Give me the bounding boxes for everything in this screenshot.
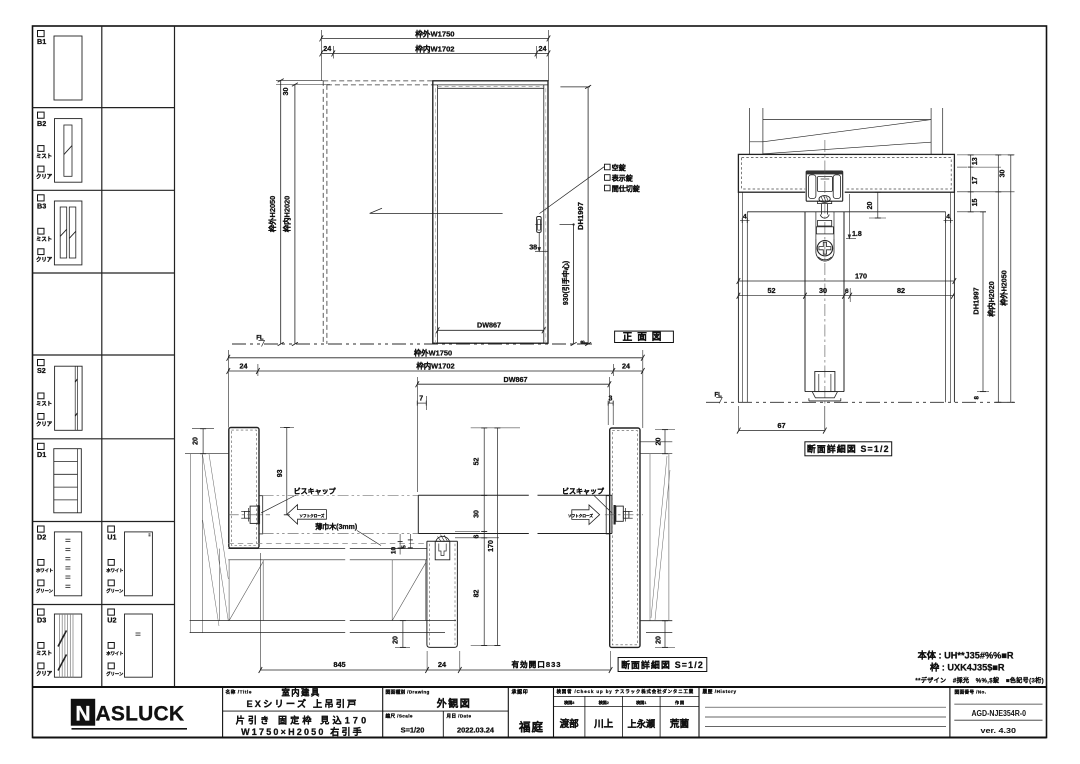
svg-text:S=1/20: S=1/20	[401, 726, 425, 735]
svg-text:正面図: 正面図	[623, 332, 667, 343]
svg-text:片引き 固定枠 見込170: 片引き 固定枠 見込170	[236, 714, 370, 725]
svg-text:24: 24	[323, 44, 331, 53]
svg-text:クリア: クリア	[36, 670, 53, 678]
svg-text:表示錠: 表示錠	[611, 173, 634, 182]
svg-text:20: 20	[655, 438, 662, 446]
svg-text:ソフトクローズ: ソフトクローズ	[568, 513, 593, 518]
svg-text:作 図: 作 図	[675, 699, 684, 705]
svg-text:1.8: 1.8	[852, 231, 862, 238]
svg-text:38: 38	[529, 243, 537, 252]
svg-text:検図1: 検図1	[636, 699, 647, 705]
svg-text:履歴 /History: 履歴 /History	[703, 688, 737, 695]
svg-text:3: 3	[609, 396, 613, 403]
svg-text:枠内H2020: 枠内H2020	[282, 196, 291, 234]
svg-text:24: 24	[622, 361, 630, 370]
svg-text:検図2: 検図2	[599, 699, 610, 705]
svg-text:ミスト: ミスト	[36, 236, 52, 243]
svg-text:枠外H2050: 枠外H2050	[999, 270, 1008, 307]
svg-text:5: 5	[402, 545, 408, 548]
svg-text:断面詳細図 S=1/2: 断面詳細図 S=1/2	[807, 443, 890, 454]
svg-text:名称 /Title: 名称 /Title	[226, 689, 253, 696]
svg-text:枠 : UXK4J35$■R: 枠 : UXK4J35$■R	[929, 662, 1005, 673]
svg-text:D3: D3	[37, 616, 46, 625]
svg-text:24: 24	[438, 660, 447, 669]
svg-text:170: 170	[488, 540, 495, 552]
svg-text:ミスト: ミスト	[36, 401, 52, 408]
svg-text:**デザイン #採光 %%,$錠 ■色記号(3桁): **デザイン #採光 %%,$錠 ■色記号(3桁)	[915, 676, 1044, 684]
svg-text:承認印: 承認印	[511, 689, 529, 696]
svg-text:8: 8	[974, 396, 981, 400]
svg-text:17: 17	[972, 177, 979, 185]
svg-text:U1: U1	[107, 533, 116, 542]
svg-text:24: 24	[539, 44, 547, 53]
svg-text:グリーン: グリーン	[106, 671, 124, 678]
svg-text:月日 /Date: 月日 /Date	[446, 712, 472, 719]
svg-text:図面種別 /Drawing: 図面種別 /Drawing	[386, 689, 430, 696]
svg-text:間仕切錠: 間仕切錠	[612, 184, 641, 193]
svg-text:D1: D1	[37, 450, 46, 459]
svg-text:福庭: 福庭	[518, 720, 544, 734]
svg-text:枠外W1750: 枠外W1750	[415, 29, 454, 39]
svg-text:枠内H2020: 枠内H2020	[987, 281, 996, 318]
svg-text:20: 20	[192, 437, 199, 445]
svg-text:ホワイト: ホワイト	[106, 567, 123, 574]
svg-text:DW867: DW867	[504, 375, 528, 384]
svg-text:30: 30	[474, 510, 481, 518]
svg-text:上永瀬: 上永瀬	[628, 718, 656, 729]
svg-text:ソフトクローズ: ソフトクローズ	[299, 513, 324, 518]
svg-text:川上: 川上	[593, 718, 614, 730]
svg-text:枠内W1702: 枠内W1702	[415, 362, 454, 371]
svg-text:グリーン: グリーン	[36, 588, 54, 595]
svg-text:ver. 4.30: ver. 4.30	[981, 726, 1017, 735]
svg-text:渡部: 渡部	[560, 718, 580, 730]
svg-text:ビスキャップ: ビスキャップ	[294, 487, 337, 496]
svg-text:52: 52	[474, 458, 481, 466]
svg-text:DW867: DW867	[477, 321, 501, 330]
svg-text:20: 20	[655, 636, 662, 644]
svg-text:S2: S2	[37, 366, 46, 375]
svg-text:30: 30	[1000, 170, 1007, 178]
svg-text:930(引手中心): 930(引手中心)	[561, 261, 570, 305]
svg-text:室内建具: 室内建具	[282, 687, 321, 697]
svg-text:20: 20	[392, 636, 399, 644]
svg-text:ミスト: ミスト	[36, 153, 52, 160]
svg-text:20: 20	[867, 202, 874, 210]
svg-text:U2: U2	[107, 616, 116, 625]
svg-text:67: 67	[777, 421, 785, 430]
svg-text:ホワイト: ホワイト	[36, 567, 53, 574]
svg-text:縮尺 /Scale: 縮尺 /Scale	[386, 712, 413, 719]
svg-text:52: 52	[768, 286, 776, 295]
svg-text:空錠: 空錠	[612, 163, 627, 172]
svg-text:N: N	[75, 703, 90, 726]
svg-text:図面番号 /No.: 図面番号 /No.	[955, 689, 987, 696]
svg-text:ASLUCK: ASLUCK	[96, 703, 185, 726]
svg-text:82: 82	[897, 286, 905, 295]
svg-text:4: 4	[743, 213, 747, 220]
svg-text:薄巾木(3mm): 薄巾木(3mm)	[315, 522, 357, 531]
svg-text:クリア: クリア	[36, 420, 53, 428]
svg-text:ホワイト: ホワイト	[106, 650, 123, 657]
svg-text:2022.03.24: 2022.03.24	[457, 726, 495, 735]
svg-text:7: 7	[419, 396, 423, 403]
svg-text:ビスキャップ: ビスキャップ	[562, 487, 605, 496]
svg-text:24: 24	[240, 361, 248, 370]
svg-text:DH1997: DH1997	[972, 287, 981, 314]
svg-text:DH1997: DH1997	[576, 202, 585, 230]
svg-text:クリア: クリア	[36, 255, 53, 263]
svg-text:有効開口833: 有効開口833	[511, 659, 561, 669]
svg-text:EXシリーズ 上吊引戸: EXシリーズ 上吊引戸	[246, 698, 358, 709]
svg-text:外観図: 外観図	[436, 697, 472, 710]
svg-text:4: 4	[946, 213, 950, 220]
svg-text:ミスト: ミスト	[36, 650, 52, 657]
svg-text:検図3: 検図3	[564, 699, 575, 705]
svg-text:15: 15	[972, 199, 979, 207]
svg-text:AGD-NJE354R-0: AGD-NJE354R-0	[972, 709, 1027, 718]
svg-text:枠内W1702: 枠内W1702	[415, 44, 454, 54]
svg-text:30: 30	[819, 286, 827, 295]
svg-text:82: 82	[474, 590, 481, 598]
svg-text:6: 6	[845, 288, 849, 295]
svg-text:D2: D2	[37, 533, 46, 542]
svg-text:荒薗: 荒薗	[669, 718, 690, 730]
svg-text:検図者 /Check up by ナスラック株式会社ダンタニ: 検図者 /Check up by ナスラック株式会社ダンタニ工業	[557, 688, 695, 695]
svg-text:クリア: クリア	[36, 173, 53, 181]
svg-text:断面詳細図 S=1/2: 断面詳細図 S=1/2	[621, 659, 704, 670]
svg-text:B1: B1	[37, 37, 46, 46]
svg-text:93: 93	[277, 469, 284, 477]
svg-text:10: 10	[390, 547, 397, 555]
svg-text:B3: B3	[37, 202, 46, 211]
svg-text:グリーン: グリーン	[106, 588, 124, 595]
svg-text:枠外W1750: 枠外W1750	[413, 348, 452, 357]
svg-text:170: 170	[855, 271, 867, 280]
svg-text:W1750×H2050 右引手: W1750×H2050 右引手	[241, 726, 364, 737]
svg-text:13: 13	[972, 157, 979, 165]
svg-text:845: 845	[333, 660, 345, 669]
svg-text:本体 : UH**J35#%%■R: 本体 : UH**J35#%%■R	[918, 649, 1014, 660]
svg-text:B2: B2	[37, 119, 46, 128]
svg-text:枠外H2050: 枠外H2050	[268, 196, 277, 234]
svg-text:30: 30	[281, 88, 290, 96]
